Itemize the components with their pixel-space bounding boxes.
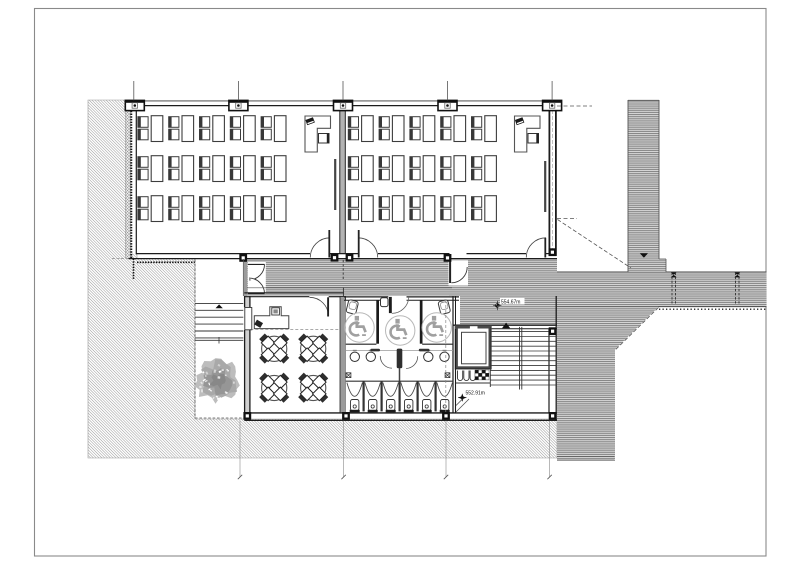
svg-text:554.67m: 554.67m xyxy=(501,299,520,305)
svg-text:552.91m: 552.91m xyxy=(466,391,485,397)
